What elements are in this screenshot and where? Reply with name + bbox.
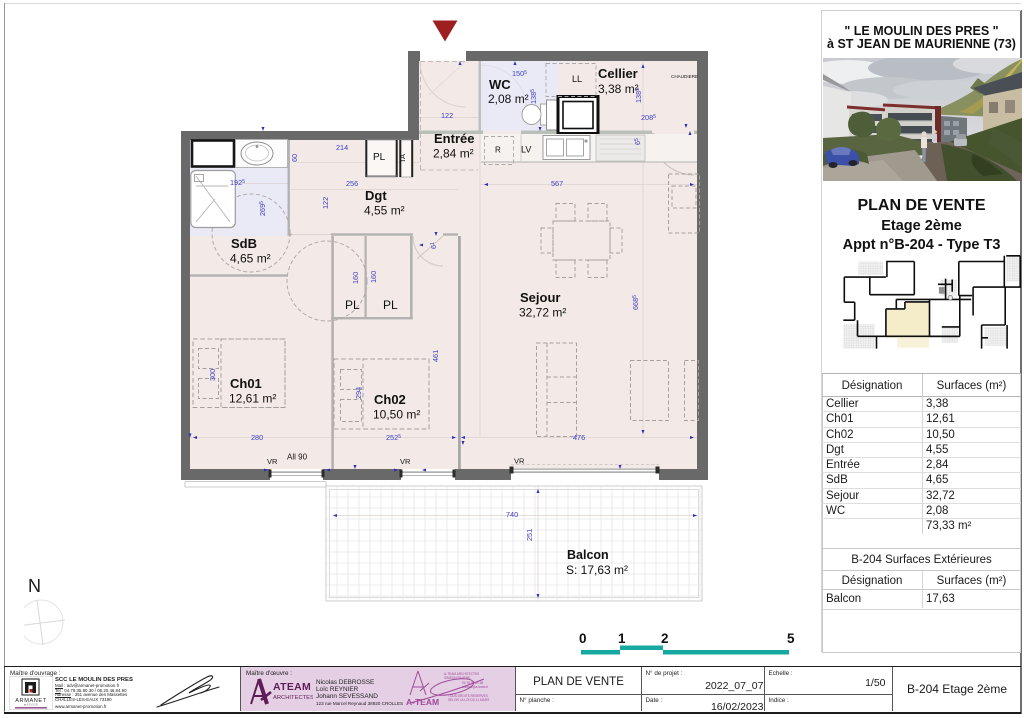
svg-text:122: 122	[441, 111, 453, 120]
svg-text:4,65 m²: 4,65 m²	[230, 252, 271, 266]
svg-text:N: N	[28, 576, 41, 596]
svg-text:567: 567	[551, 179, 563, 188]
svg-text:Entrée: Entrée	[434, 131, 474, 146]
svg-text:PL: PL	[383, 298, 398, 312]
svg-text:2,08 m²: 2,08 m²	[488, 92, 529, 106]
svg-text:Ch01: Ch01	[230, 376, 262, 391]
svg-text:10,50 m²: 10,50 m²	[373, 408, 420, 422]
svg-text:SdB: SdB	[231, 236, 257, 251]
svg-text:160: 160	[351, 272, 360, 284]
svg-text:S: 17,63 m²: S: 17,63 m²	[566, 563, 628, 577]
svg-text:214: 214	[336, 143, 348, 152]
svg-text:ARCHITECTES: ARCHITECTES	[273, 695, 313, 701]
svg-text:60: 60	[290, 154, 299, 162]
svg-text:256: 256	[346, 179, 358, 188]
svg-text:VR: VR	[400, 457, 411, 466]
svg-text:contact@a-team.fr: contact@a-team.fr	[462, 685, 489, 689]
svg-text:All 90: All 90	[287, 453, 308, 462]
svg-text:CHAUDIERE: CHAUDIERE	[671, 74, 698, 79]
svg-text:Cellier: Cellier	[598, 66, 638, 81]
svg-text:WC: WC	[489, 77, 511, 92]
svg-text:Dgt: Dgt	[365, 188, 387, 203]
svg-text:280: 280	[251, 433, 263, 442]
svg-text:2,84 m²: 2,84 m²	[433, 147, 474, 161]
svg-text:300: 300	[208, 369, 217, 381]
svg-text:A-TEAM: A-TEAM	[406, 697, 439, 707]
svg-text:Sejour: Sejour	[520, 290, 560, 305]
svg-text:R: R	[495, 146, 501, 155]
svg-text:160: 160	[369, 271, 378, 283]
svg-text:461: 461	[431, 350, 440, 362]
svg-text:32,72 m²: 32,72 m²	[519, 306, 566, 320]
svg-text:Ch02: Ch02	[374, 392, 406, 407]
svg-text:VR: VR	[514, 457, 525, 466]
svg-text:4,55 m²: 4,55 m²	[364, 204, 405, 218]
svg-text:476: 476	[573, 433, 585, 442]
svg-text:740: 740	[506, 510, 518, 519]
svg-text:122: 122	[321, 197, 330, 209]
svg-text:VR: VR	[267, 457, 278, 466]
svg-text:PL: PL	[373, 152, 386, 163]
svg-text:Balcon: Balcon	[567, 548, 609, 562]
svg-text:SELON LA LOI DU 11 MARS: SELON LA LOI DU 11 MARS	[448, 698, 489, 702]
svg-text:1: 1	[618, 631, 626, 646]
svg-text:◆ ASSOCIE: ◆ ASSOCIE	[24, 703, 38, 707]
svg-text:0: 0	[579, 631, 587, 646]
svg-text:SIMEON RIVIERE: SIMEON RIVIERE	[444, 676, 470, 680]
svg-text:TA: TA	[398, 154, 407, 163]
svg-text:251: 251	[525, 529, 534, 541]
svg-text:PL: PL	[345, 298, 360, 312]
svg-text:2: 2	[661, 631, 669, 646]
svg-text:LL: LL	[572, 74, 582, 84]
svg-text:3,38 m²: 3,38 m²	[598, 82, 639, 96]
svg-text:12,61 m²: 12,61 m²	[229, 392, 276, 406]
svg-text:LV: LV	[521, 145, 531, 155]
svg-text:ATEAM: ATEAM	[273, 681, 311, 693]
svg-text:5: 5	[787, 631, 795, 646]
svg-text:294: 294	[354, 387, 363, 399]
